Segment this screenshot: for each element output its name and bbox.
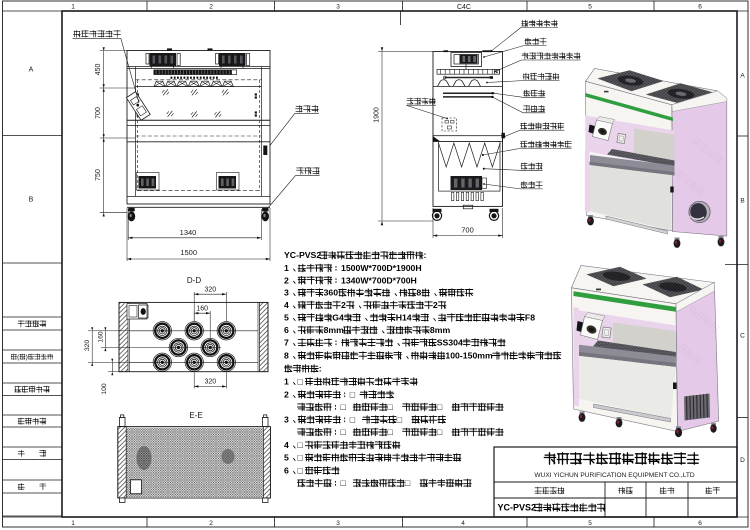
svg-text:B: B bbox=[29, 197, 34, 204]
svg-text:750: 750 bbox=[95, 169, 102, 181]
svg-text:1500: 1500 bbox=[180, 248, 197, 257]
svg-text:F8: F8 bbox=[525, 313, 535, 323]
svg-text:1900: 1900 bbox=[374, 107, 381, 123]
svg-text:SS304: SS304 bbox=[437, 338, 463, 348]
svg-text:8: 8 bbox=[416, 288, 421, 298]
svg-text:450: 450 bbox=[95, 64, 102, 76]
svg-text:C4C: C4C bbox=[457, 4, 471, 11]
svg-text:5: 5 bbox=[284, 453, 289, 463]
svg-text:□: □ bbox=[397, 415, 403, 425]
svg-text:320: 320 bbox=[204, 378, 216, 385]
svg-text:3: 3 bbox=[336, 520, 340, 527]
svg-text:6: 6 bbox=[698, 4, 702, 11]
svg-text:4: 4 bbox=[284, 440, 289, 450]
svg-text:D-D: D-D bbox=[187, 276, 201, 285]
svg-text:D: D bbox=[740, 457, 745, 464]
svg-text:□: □ bbox=[437, 402, 443, 412]
svg-text:100: 100 bbox=[101, 383, 108, 395]
svg-text:1500W*700D*1900H: 1500W*700D*1900H bbox=[341, 263, 422, 273]
svg-text:A: A bbox=[29, 67, 34, 74]
svg-text:8mm: 8mm bbox=[430, 325, 451, 335]
svg-text:1340W*700D*700H: 1340W*700D*700H bbox=[341, 275, 417, 285]
svg-text:G4: G4 bbox=[332, 313, 344, 323]
svg-text:□: □ bbox=[298, 377, 304, 387]
svg-text:YC-PVS2: YC-PVS2 bbox=[498, 503, 537, 513]
svg-text:□: □ bbox=[350, 390, 356, 400]
svg-text:): ) bbox=[26, 354, 28, 361]
svg-text:320: 320 bbox=[84, 340, 91, 352]
svg-text:□: □ bbox=[341, 427, 347, 437]
svg-text:□: □ bbox=[388, 402, 394, 412]
svg-text:1: 1 bbox=[71, 520, 75, 527]
svg-text:C: C bbox=[740, 333, 745, 340]
svg-text:□: □ bbox=[341, 402, 347, 412]
svg-text:YC-PVS2: YC-PVS2 bbox=[284, 250, 321, 260]
svg-text:6: 6 bbox=[284, 466, 289, 476]
svg-text:□: □ bbox=[388, 427, 394, 437]
svg-text:1: 1 bbox=[284, 263, 289, 273]
svg-text:WUXI YICHUN PURIFICATION EQUIP: WUXI YICHUN PURIFICATION EQUIPMENT CO.,L… bbox=[534, 472, 695, 479]
svg-text:2: 2 bbox=[341, 300, 346, 310]
svg-text:700: 700 bbox=[95, 107, 102, 119]
svg-text:□: □ bbox=[350, 415, 356, 425]
svg-text:2: 2 bbox=[284, 390, 289, 400]
svg-text::: : bbox=[424, 250, 427, 260]
svg-text:5: 5 bbox=[284, 313, 289, 323]
svg-text:700: 700 bbox=[461, 225, 474, 234]
svg-text:5: 5 bbox=[588, 520, 592, 527]
svg-text:□: □ bbox=[298, 453, 304, 463]
svg-text:7: 7 bbox=[284, 338, 289, 348]
svg-text:2: 2 bbox=[209, 4, 213, 11]
svg-text:□: □ bbox=[298, 466, 304, 476]
svg-text:1340: 1340 bbox=[180, 228, 197, 237]
svg-text:6: 6 bbox=[698, 520, 702, 527]
svg-text:E-E: E-E bbox=[189, 411, 202, 420]
svg-text:3: 3 bbox=[284, 415, 289, 425]
svg-text:8mm: 8mm bbox=[324, 325, 345, 335]
svg-text:A: A bbox=[740, 73, 745, 80]
svg-text:160: 160 bbox=[196, 305, 208, 312]
svg-text:2: 2 bbox=[284, 275, 289, 285]
svg-text:5: 5 bbox=[588, 4, 592, 11]
svg-text:4: 4 bbox=[284, 300, 289, 310]
svg-text:B: B bbox=[740, 198, 744, 205]
svg-text:6: 6 bbox=[284, 325, 289, 335]
svg-text:320: 320 bbox=[204, 286, 216, 293]
svg-text:100-150mm: 100-150mm bbox=[445, 351, 493, 361]
svg-text:1: 1 bbox=[71, 4, 75, 11]
svg-text:□: □ bbox=[437, 427, 443, 437]
svg-text:4: 4 bbox=[461, 520, 465, 527]
svg-text:1: 1 bbox=[284, 377, 289, 387]
svg-text:160: 160 bbox=[97, 331, 104, 343]
svg-text:2: 2 bbox=[433, 300, 438, 310]
svg-text:360: 360 bbox=[324, 288, 339, 298]
svg-text::: : bbox=[319, 364, 322, 374]
svg-text:2: 2 bbox=[209, 520, 213, 527]
svg-text:3: 3 bbox=[336, 4, 340, 11]
svg-text:□: □ bbox=[405, 478, 411, 488]
svg-text:3: 3 bbox=[284, 288, 289, 298]
svg-text:□: □ bbox=[298, 440, 304, 450]
svg-text:8: 8 bbox=[284, 351, 289, 361]
svg-text:□: □ bbox=[341, 478, 347, 488]
svg-text:H14: H14 bbox=[396, 313, 412, 323]
